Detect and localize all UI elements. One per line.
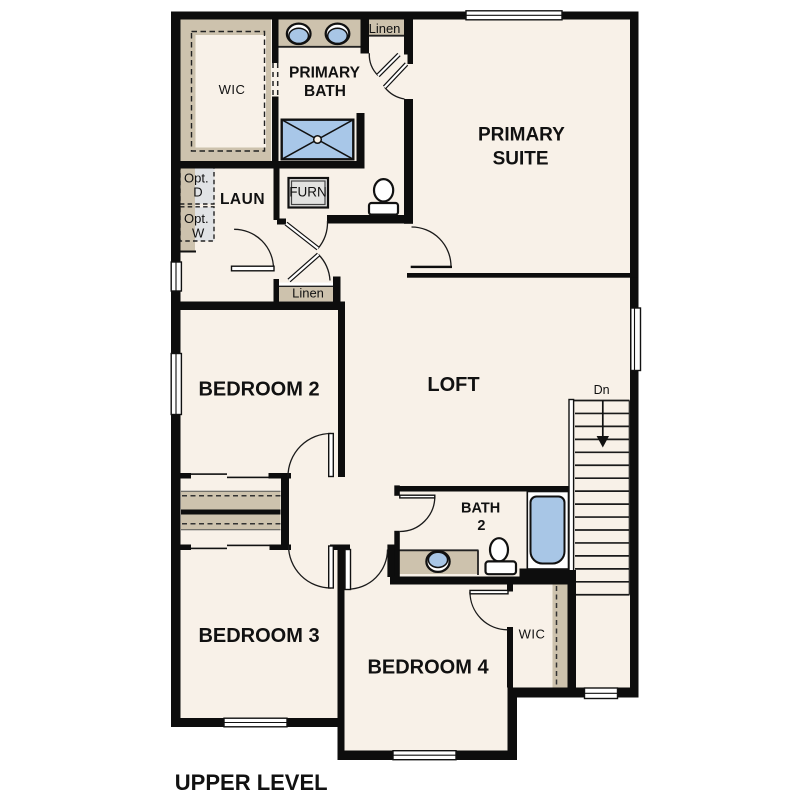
- svg-text:WIC: WIC: [519, 626, 546, 641]
- svg-text:D: D: [193, 185, 202, 200]
- svg-text:LAUN: LAUN: [220, 191, 265, 208]
- svg-text:BATH: BATH: [304, 83, 346, 100]
- svg-text:Linen: Linen: [369, 21, 401, 36]
- svg-text:WIC: WIC: [219, 82, 246, 97]
- svg-text:BATH: BATH: [461, 501, 500, 517]
- svg-text:BEDROOM 2: BEDROOM 2: [198, 379, 319, 401]
- svg-text:FURN: FURN: [289, 184, 327, 199]
- svg-text:2: 2: [477, 518, 485, 534]
- svg-text:W: W: [192, 225, 205, 240]
- svg-text:BEDROOM 4: BEDROOM 4: [367, 657, 489, 679]
- svg-text:PRIMARY: PRIMARY: [289, 64, 361, 81]
- svg-text:PRIMARY: PRIMARY: [478, 124, 565, 145]
- svg-text:Linen: Linen: [292, 286, 324, 301]
- svg-text:Opt.: Opt.: [184, 170, 209, 185]
- svg-text:UPPER LEVEL: UPPER LEVEL: [175, 770, 328, 795]
- svg-text:Opt.: Opt.: [184, 211, 209, 226]
- svg-text:BEDROOM 3: BEDROOM 3: [198, 625, 319, 647]
- svg-text:SUITE: SUITE: [493, 148, 549, 169]
- svg-text:LOFT: LOFT: [427, 374, 479, 396]
- svg-text:Dn: Dn: [594, 383, 610, 397]
